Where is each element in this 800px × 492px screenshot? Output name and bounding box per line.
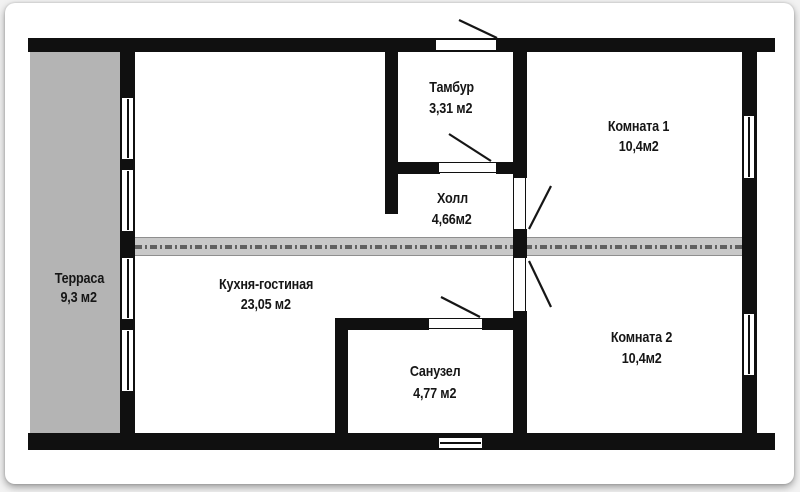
kitchen-living-area: 23,05 м2 [166, 296, 366, 313]
entrance-door-swing [459, 20, 497, 38]
hall-area: 4,66м2 [352, 211, 552, 228]
terrace-label: Терраса [0, 270, 179, 287]
tambour-label: Тамбур [352, 79, 552, 96]
outer-wall-bottom [28, 433, 775, 450]
center-wall-middle [513, 229, 527, 258]
room1-area: 10,4м2 [539, 138, 739, 155]
terrace-window-1 [121, 97, 134, 160]
room2-label: Комната 2 [542, 329, 742, 346]
floor-plan: Терраса 9,3 м2 Тамбур 3,31 м2 Холл 4,66м… [0, 0, 800, 492]
terrace-area [30, 52, 120, 433]
bathroom-top-wall-right [482, 318, 527, 330]
bathroom-top-wall-left [335, 318, 429, 330]
terrace-window-4 [121, 329, 134, 392]
tambour-area: 3,31 м2 [351, 100, 551, 117]
room2-door-swing [529, 261, 551, 307]
bathroom-window [438, 437, 483, 449]
room2-area: 10,4м2 [542, 350, 742, 367]
tambour-bottom-wall-left [385, 162, 440, 174]
room2-door [513, 257, 526, 312]
bathroom-area: 4,77 м2 [335, 385, 535, 402]
outer-wall-top [28, 38, 775, 52]
partition-strip [135, 237, 742, 256]
tambour-door-swing [449, 134, 491, 161]
tambour-hall-door [438, 162, 497, 173]
entrance-door [435, 39, 497, 51]
kitchen-living-label: Кухня-гостиная [166, 276, 366, 293]
room1-label: Комната 1 [539, 118, 739, 135]
hall-label: Холл [352, 190, 552, 207]
terrace-area: 9,3 м2 [0, 289, 179, 306]
room2-window [743, 313, 755, 376]
bathroom-label: Санузел [335, 363, 535, 380]
bathroom-door [428, 318, 483, 329]
room1-window [743, 115, 755, 179]
bathroom-door-swing [441, 297, 480, 317]
terrace-window-2 [121, 169, 134, 232]
